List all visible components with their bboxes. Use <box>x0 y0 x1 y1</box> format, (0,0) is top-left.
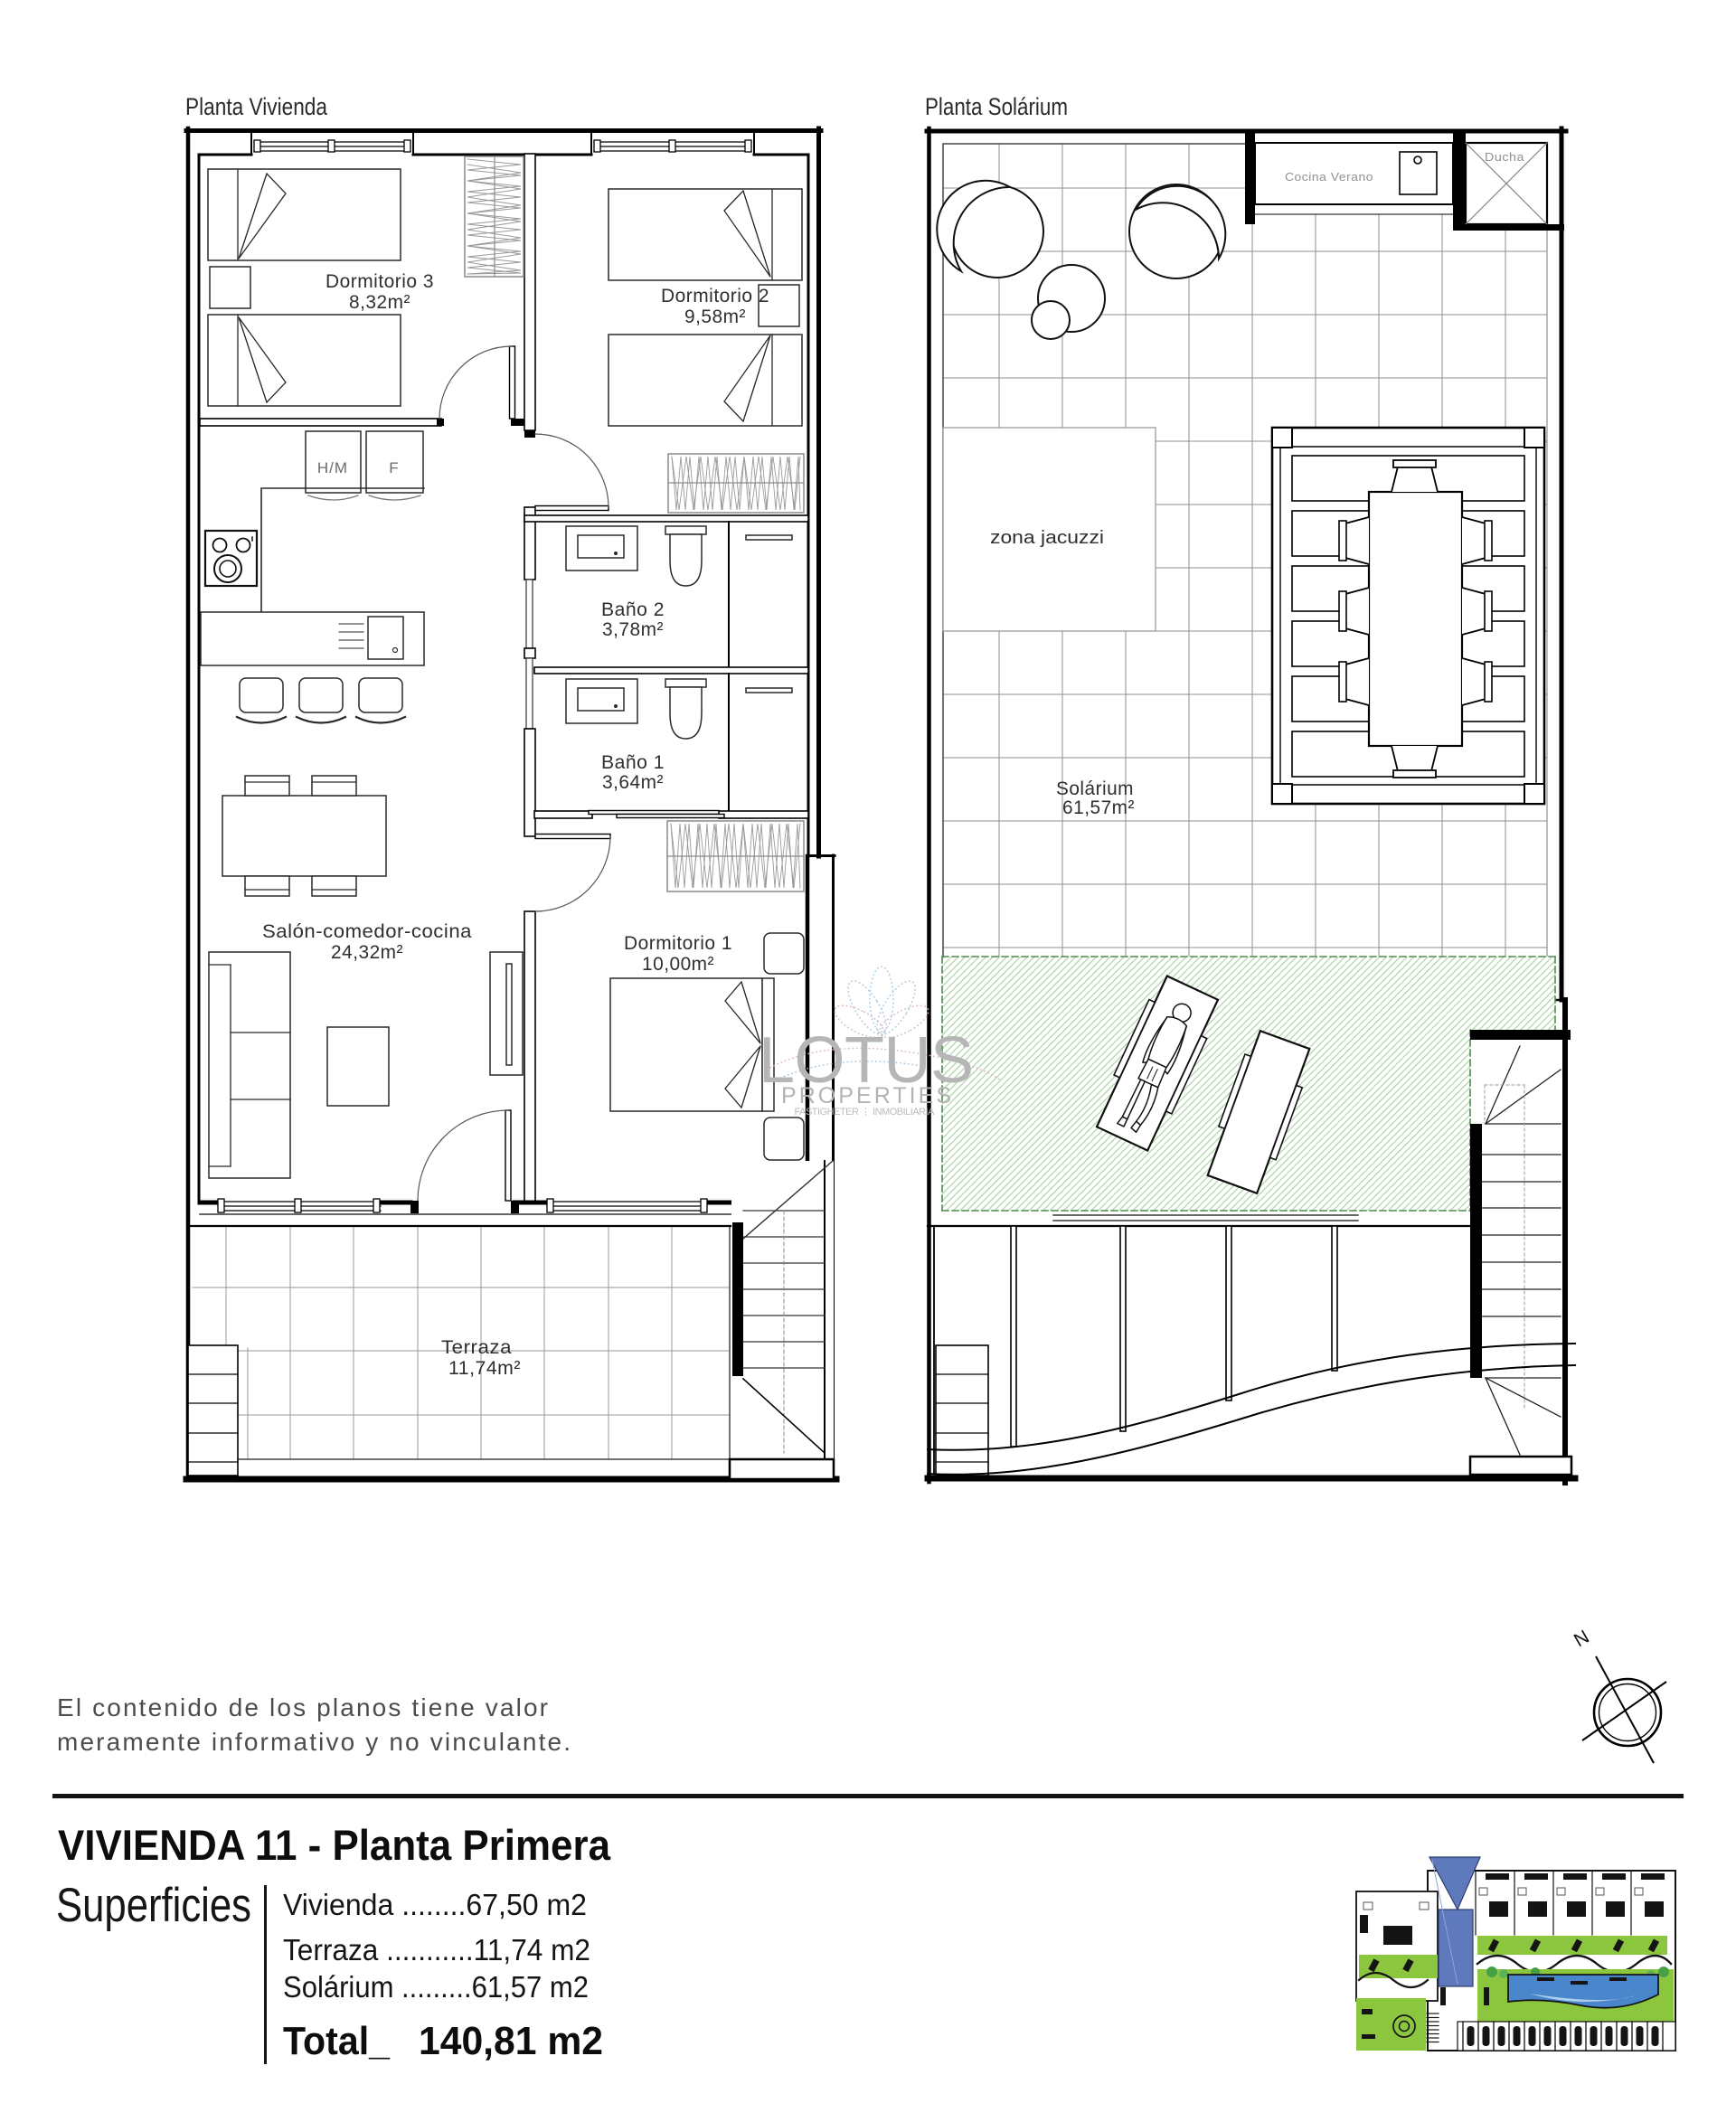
svg-text:El contenido de los planos tie: El contenido de los planos tiene valor <box>57 1693 548 1721</box>
svg-text:Cocina Verano: Cocina Verano <box>1285 170 1373 184</box>
svg-text:Vivienda ........67,50 m2: Vivienda ........67,50 m2 <box>283 1888 587 1921</box>
svg-text:FASTIGHETER ⋮ INMOBILIARIA: FASTIGHETER ⋮ INMOBILIARIA <box>795 1107 936 1118</box>
svg-text:Superficies: Superficies <box>56 1879 251 1932</box>
svg-text:11,74m²: 11,74m² <box>448 1358 521 1379</box>
svg-text:Planta Solárium: Planta Solárium <box>925 93 1068 120</box>
svg-text:Ducha: Ducha <box>1485 150 1524 164</box>
svg-text:24,32m²: 24,32m² <box>331 942 403 963</box>
svg-text:Planta Vivienda: Planta Vivienda <box>185 93 328 120</box>
svg-text:zona jacuzzi: zona jacuzzi <box>990 528 1104 548</box>
svg-text:Dormitorio 1: Dormitorio 1 <box>624 933 732 954</box>
svg-text:140,81 m2: 140,81 m2 <box>419 2019 603 2063</box>
svg-text:8,32m²: 8,32m² <box>349 292 410 313</box>
svg-text:Dormitorio 2: Dormitorio 2 <box>661 286 769 307</box>
svg-text:Solárium .........61,57 m2: Solárium .........61,57 m2 <box>283 1970 589 2004</box>
svg-text:9,58m²: 9,58m² <box>684 307 746 327</box>
svg-text:Terraza ...........11,74 m2: Terraza ...........11,74 m2 <box>283 1933 590 1966</box>
svg-text:PROPERTIES: PROPERTIES <box>781 1083 951 1108</box>
svg-text:Solárium: Solárium <box>1056 778 1134 799</box>
svg-text:F: F <box>389 459 399 476</box>
svg-text:Total_: Total_ <box>283 2019 390 2063</box>
svg-text:VIVIENDA 11 - Planta Primera: VIVIENDA 11 - Planta Primera <box>58 1821 611 1869</box>
svg-text:meramente informativo y no vin: meramente informativo y no vinculante. <box>57 1728 571 1756</box>
svg-text:Baño 1: Baño 1 <box>601 752 665 773</box>
svg-text:Baño 2: Baño 2 <box>601 599 665 620</box>
svg-text:H/M: H/M <box>317 459 348 476</box>
svg-text:Dormitorio 3: Dormitorio 3 <box>325 271 434 292</box>
svg-text:3,78m²: 3,78m² <box>602 619 664 640</box>
svg-text:Salón-comedor-cocina: Salón-comedor-cocina <box>262 921 472 942</box>
svg-text:3,64m²: 3,64m² <box>602 772 664 793</box>
svg-text:61,57m²: 61,57m² <box>1062 797 1135 818</box>
svg-text:Terraza: Terraza <box>441 1337 512 1358</box>
svg-text:10,00m²: 10,00m² <box>642 954 714 975</box>
